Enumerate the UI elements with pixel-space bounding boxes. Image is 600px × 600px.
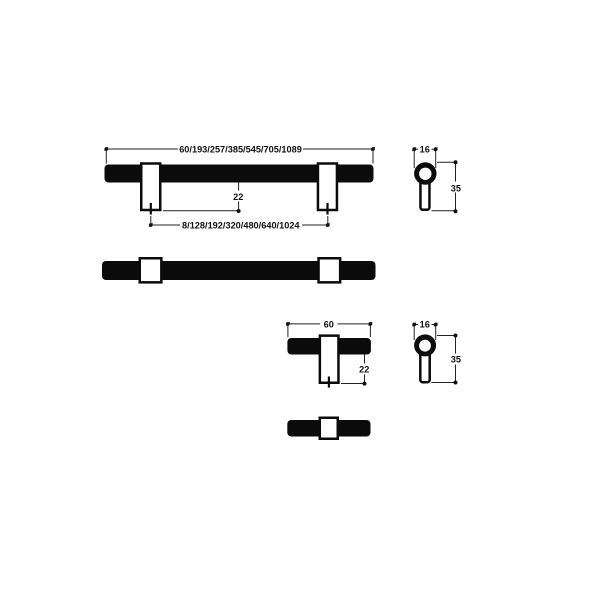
svg-text:60/193/257/385/545/705/1089: 60/193/257/385/545/705/1089	[179, 145, 302, 155]
svg-text:60: 60	[324, 319, 334, 329]
svg-text:35: 35	[451, 183, 461, 193]
svg-text:16: 16	[420, 320, 430, 330]
svg-text:8/128/192/320/480/640/1024: 8/128/192/320/480/640/1024	[182, 221, 300, 231]
svg-text:22: 22	[233, 192, 243, 202]
svg-text:22: 22	[359, 364, 369, 374]
svg-text:35: 35	[451, 354, 461, 364]
svg-text:16: 16	[420, 145, 430, 155]
